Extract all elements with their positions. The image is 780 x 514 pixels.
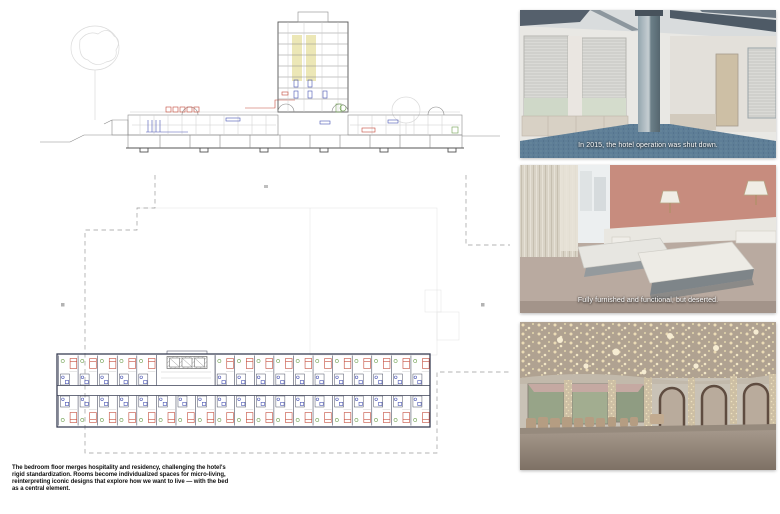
mirrored-column [635,10,663,132]
guest-room [235,356,254,386]
yellow-shaft [306,35,316,81]
guest-room [411,396,430,426]
photo-caption: In 2015, the hotel operation was shut do… [520,142,776,149]
tree-icon [392,97,420,134]
caption-line: The bedroom floor merges hospitality and… [12,465,262,472]
guest-room [235,396,254,426]
guest-room [59,356,78,386]
board-caption: The bedroom floor merges hospitality and… [12,465,262,493]
guest-room [333,356,352,386]
guest-room [313,396,332,426]
guest-room [215,396,234,426]
guest-room [78,356,97,386]
guest-room [137,356,156,386]
photo-bedroom: Fully furnished and functional, but dese… [520,165,776,313]
guest-room [372,356,391,386]
guest-room [274,356,293,386]
podium-section [104,100,462,135]
guest-room [98,396,117,426]
elevator-core [156,351,215,386]
guest-room [156,396,175,426]
section-marker [481,303,485,307]
guest-room [254,356,272,386]
site-plan-drawing [40,170,510,470]
guest-room [196,396,215,426]
guest-room [313,356,332,386]
tree-icon [71,26,119,120]
guest-room [372,396,391,426]
guest-room [411,356,430,386]
green-accent [340,105,458,133]
guest-room [59,396,78,426]
presentation-board: In 2015, the hotel operation was shut do… [0,0,780,514]
caption-line: rigid standardization. Rooms become indi… [12,472,262,479]
guest-room [98,356,117,386]
caption-line: reinterpreting iconic designs that explo… [12,479,262,486]
site-boundary-dashed [85,175,510,453]
door [716,54,738,126]
guest-room [137,396,156,426]
guest-room [254,396,272,426]
ballroom-illustration [520,322,776,470]
guest-room [352,356,371,386]
building-section-drawing [40,8,500,158]
yellow-shaft [292,35,302,81]
floor-plan [57,351,430,427]
guest-room [215,356,234,386]
basement [126,135,464,152]
guest-room [117,396,136,426]
guest-room [293,396,312,426]
window-blinds [524,36,626,128]
guest-room [333,396,352,426]
photo-ballroom [520,322,776,470]
arched-doorway [660,384,768,426]
guest-room [293,356,312,386]
guest-room [391,396,410,426]
section-marker [61,303,65,307]
guest-room [117,356,136,386]
caption-line: as a central element. [12,486,262,493]
ground-line [40,135,128,142]
photo-caption: Fully furnished and functional, but dese… [520,297,776,304]
chandelier-ceiling [520,322,776,378]
faint-site-outline [137,208,459,355]
guest-room [352,396,371,426]
guest-room [78,396,97,426]
section-marker [264,185,268,188]
floor-plan-rooms [59,356,430,426]
bedroom-illustration [520,165,776,313]
lounge-illustration [520,10,776,158]
tower-section [278,12,348,112]
guest-room [274,396,293,426]
photo-lounge: In 2015, the hotel operation was shut do… [520,10,776,158]
guest-room [176,396,195,426]
guest-room [391,356,410,386]
ballroom-floor [520,428,776,470]
